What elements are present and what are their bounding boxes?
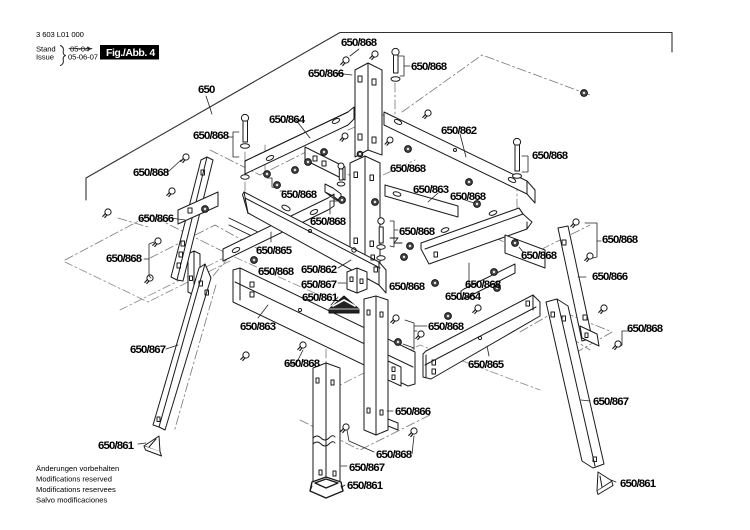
- svg-text:650/867: 650/867: [130, 344, 166, 356]
- svg-text:650/868: 650/868: [602, 234, 638, 246]
- svg-text:650/868: 650/868: [341, 37, 377, 49]
- svg-text:650/867: 650/867: [301, 279, 337, 291]
- svg-text:3 603 L01 000: 3 603 L01 000: [36, 30, 84, 39]
- svg-text:650/868: 650/868: [193, 130, 229, 142]
- svg-text:650/868: 650/868: [627, 323, 663, 335]
- svg-text:650/868: 650/868: [258, 266, 294, 278]
- svg-text:650/861: 650/861: [302, 292, 339, 304]
- svg-text:650/865: 650/865: [468, 359, 505, 371]
- svg-text:650/863: 650/863: [413, 184, 449, 196]
- svg-text:650/866: 650/866: [308, 68, 344, 80]
- svg-text:Issue: Issue: [36, 53, 54, 62]
- svg-text:650/867: 650/867: [593, 396, 629, 408]
- svg-text:650: 650: [198, 84, 215, 96]
- svg-text:650/868: 650/868: [281, 189, 317, 201]
- svg-text:650/861: 650/861: [347, 480, 384, 492]
- svg-text:650/861: 650/861: [620, 478, 657, 490]
- svg-text:650/865: 650/865: [256, 245, 293, 257]
- svg-text:650/864: 650/864: [445, 291, 482, 303]
- svg-text:650/868: 650/868: [389, 281, 425, 293]
- svg-text:650/867: 650/867: [349, 462, 385, 474]
- svg-text:Fig./Abb. 4: Fig./Abb. 4: [106, 47, 155, 59]
- svg-text:Änderungen vorbehalten: Änderungen vorbehalten: [36, 464, 119, 473]
- svg-text:650/868: 650/868: [106, 253, 142, 265]
- svg-text:650/863: 650/863: [240, 321, 276, 333]
- svg-text:650/868: 650/868: [465, 279, 501, 291]
- svg-text:05-06-07: 05-06-07: [68, 53, 98, 62]
- svg-text:650/868: 650/868: [133, 167, 169, 179]
- svg-text:650/868: 650/868: [450, 191, 486, 203]
- svg-text:650/862: 650/862: [301, 264, 337, 276]
- svg-text:650/868: 650/868: [521, 250, 557, 262]
- svg-text:650/868: 650/868: [376, 449, 412, 461]
- svg-text:650/868: 650/868: [399, 226, 435, 238]
- svg-text:650/861: 650/861: [98, 440, 135, 452]
- svg-text:650/866: 650/866: [592, 271, 628, 283]
- svg-text:650/868: 650/868: [390, 163, 426, 175]
- svg-text:Modifications reservees: Modifications reservees: [36, 485, 116, 494]
- svg-text:650/868: 650/868: [532, 150, 568, 162]
- svg-text:650/868: 650/868: [310, 216, 346, 228]
- svg-text:650/868: 650/868: [411, 61, 447, 73]
- svg-text:650/862: 650/862: [441, 125, 477, 137]
- svg-text:650/864: 650/864: [269, 114, 306, 126]
- svg-text:650/868: 650/868: [428, 321, 464, 333]
- svg-text:Modifications reserved: Modifications reserved: [36, 475, 112, 484]
- svg-text:650/866: 650/866: [138, 213, 174, 225]
- svg-text:650/868: 650/868: [284, 358, 320, 370]
- svg-text:650/866: 650/866: [395, 406, 431, 418]
- svg-text:Salvo modificaciones: Salvo modificaciones: [36, 496, 108, 505]
